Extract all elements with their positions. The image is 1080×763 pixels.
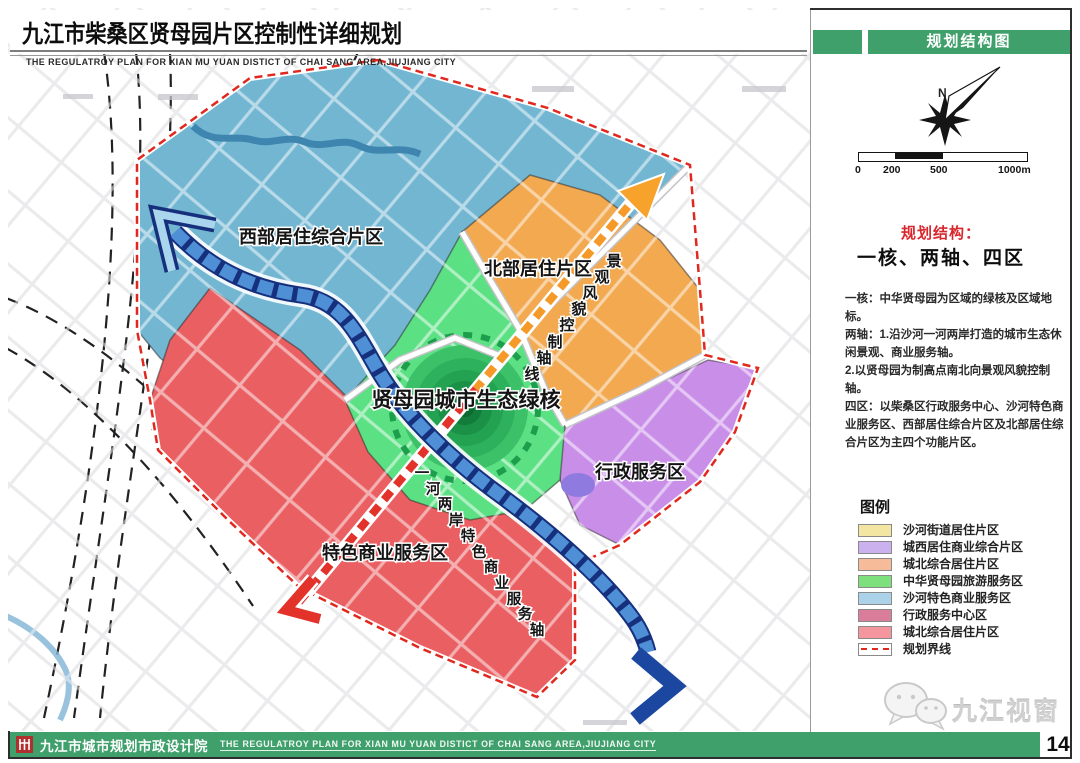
- svg-text:风: 风: [582, 285, 597, 302]
- svg-text:特: 特: [461, 527, 476, 545]
- svg-text:轴: 轴: [530, 621, 545, 639]
- legend-title: 图例: [860, 496, 890, 517]
- boundary-line-swatch: [858, 643, 892, 656]
- legend-label: 城西居住商业综合片区: [903, 541, 1023, 554]
- scale-tick: 1000m: [998, 164, 1031, 176]
- pond: [561, 473, 595, 497]
- legend-swatch: [858, 626, 892, 639]
- scale-tick: 200: [883, 164, 901, 176]
- footer-org: 九江市城市规划市政设计院: [40, 735, 208, 755]
- structure-subheading: 一核、两轴、四区: [810, 243, 1072, 270]
- title-divider: [10, 50, 807, 56]
- legend-item: 沙河特色商业服务区: [858, 592, 1023, 605]
- svg-text:业: 业: [495, 575, 510, 592]
- legend-item: 城北综合居住片区: [858, 558, 1023, 571]
- legend-item: 城北综合居住片区: [858, 626, 1023, 639]
- svg-text:景: 景: [606, 252, 621, 270]
- legend-label: 沙河街道居住片区: [903, 524, 999, 537]
- internal-roads: [8, 8, 810, 731]
- institute-logo-icon: [15, 735, 34, 754]
- svg-text:务: 务: [518, 605, 533, 623]
- wechat-icon: [882, 680, 952, 732]
- panel-header-accent: [813, 30, 862, 54]
- legend-swatch: [858, 575, 892, 588]
- label-commercial-region: 特色商业服务区: [322, 542, 448, 563]
- svg-text:线: 线: [524, 365, 539, 383]
- legend-swatch: [858, 524, 892, 537]
- legend-item: 城西居住商业综合片区: [858, 541, 1023, 554]
- svg-text:岸: 岸: [449, 511, 464, 529]
- page-title: 九江市柴桑区贤母园片区控制性详细规划: [22, 14, 402, 49]
- structure-heading: 规划结构：: [810, 222, 1072, 243]
- svg-text:河: 河: [426, 480, 441, 498]
- legend-swatch: [858, 541, 892, 554]
- structure-body: 一核：中华贤母园为区域的绿核及区域地标。 两轴：1.沿沙河一河两岸打造的城市生态…: [845, 290, 1069, 452]
- legend-label: 沙河特色商业服务区: [903, 592, 1011, 605]
- legend-item: 中华贤母园旅游服务区: [858, 575, 1023, 588]
- label-green-core: 贤母园城市生态绿核: [372, 388, 561, 412]
- label-west-region: 西部居住综合片区: [239, 226, 383, 247]
- panel-title: 规划结构图: [868, 30, 1070, 54]
- footer-subtitle: THE REGULATROY PLAN FOR XIAN MU YUAN DIS…: [220, 739, 656, 751]
- compass-rose-icon: [905, 58, 1020, 158]
- legend-swatch: [858, 609, 892, 622]
- scale-tick: 0: [855, 164, 861, 176]
- label-admin-region: 行政服务区: [594, 461, 685, 482]
- legend-label: 行政服务中心区: [903, 609, 987, 622]
- svg-text:色: 色: [472, 543, 487, 561]
- planning-map: 西部居住综合片区 北部居住片区 贤母园城市生态绿核 行政服务区 特色商业服务区 …: [8, 8, 810, 731]
- legend-label: 规划界线: [903, 643, 951, 656]
- legend-label: 中华贤母园旅游服务区: [903, 575, 1023, 588]
- label-north-region: 北部居住片区: [484, 258, 592, 279]
- svg-text:一: 一: [415, 466, 430, 482]
- svg-text:观: 观: [594, 269, 609, 286]
- legend-swatch: [858, 558, 892, 571]
- legend-label: 城北综合居住片区: [903, 558, 999, 571]
- watermark: 九江视窗: [952, 692, 1060, 728]
- svg-text:貌: 貌: [570, 300, 586, 318]
- sidebar-divider: [810, 10, 811, 732]
- svg-text:服: 服: [507, 591, 522, 608]
- svg-text:商: 商: [484, 558, 499, 576]
- svg-text:轴: 轴: [536, 349, 551, 367]
- scale-bar: [858, 152, 1028, 162]
- svg-text:控: 控: [559, 316, 574, 334]
- legend-item: 行政服务中心区: [858, 609, 1023, 622]
- legend-item: 规划界线: [858, 643, 1023, 656]
- legend-swatch: [858, 592, 892, 605]
- legend-item: 沙河街道居住片区: [858, 524, 1023, 537]
- svg-text:两: 两: [438, 496, 453, 513]
- legend: 沙河街道居住片区 城西居住商业综合片区 城北综合居住片区 中华贤母园旅游服务区 …: [858, 524, 1023, 660]
- page-subtitle: THE REGULATROY PLAN FOR XIAN MU YUAN DIS…: [26, 57, 456, 67]
- scale-tick: 500: [930, 164, 948, 176]
- svg-text:制: 制: [547, 333, 562, 351]
- footer-bar: 九江市城市规划市政设计院 THE REGULATROY PLAN FOR XIA…: [10, 732, 1040, 757]
- page-number: 14: [1042, 733, 1074, 757]
- legend-label: 城北综合居住片区: [903, 626, 999, 639]
